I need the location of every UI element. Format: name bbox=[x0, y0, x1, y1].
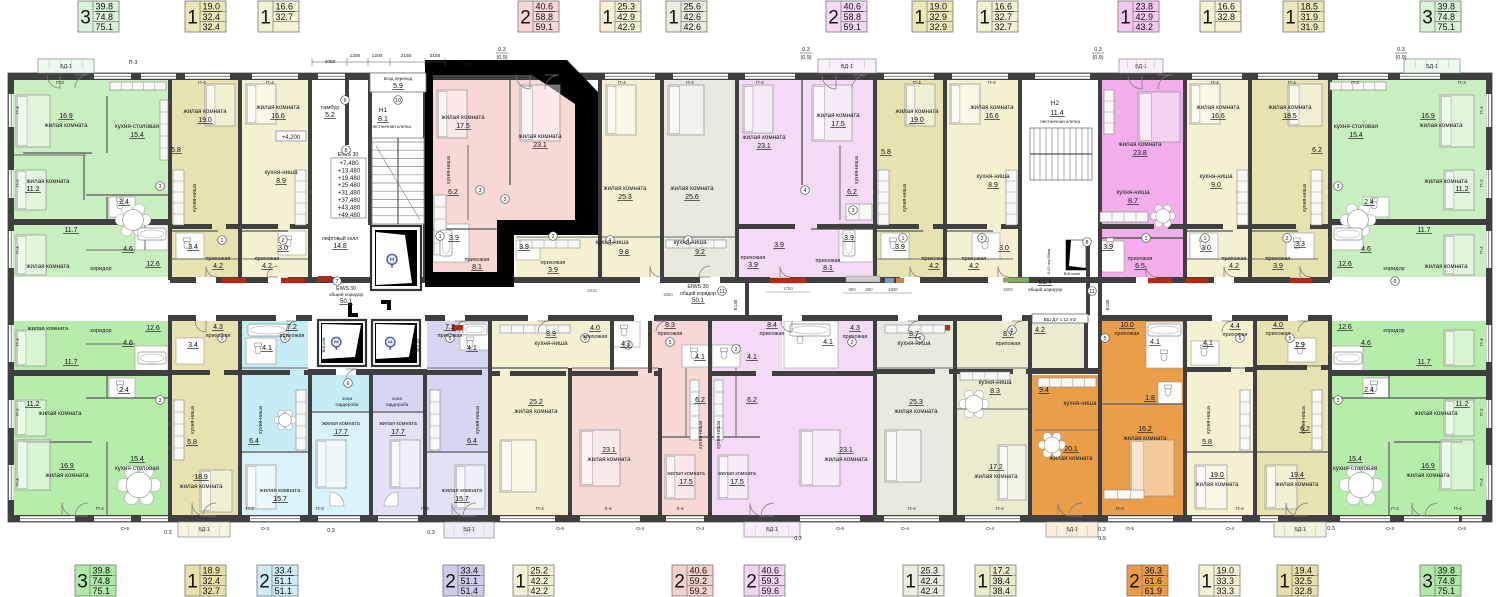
svg-text:гардероба: гардероба bbox=[386, 402, 409, 408]
svg-text:БД-1: БД-1 bbox=[1426, 64, 1438, 70]
svg-text:П-4: П-4 bbox=[1479, 106, 1484, 114]
svg-text:40.6: 40.6 bbox=[536, 2, 554, 12]
svg-text:16.6: 16.6 bbox=[276, 2, 294, 12]
svg-text:О-5: О-5 bbox=[836, 526, 844, 532]
svg-text:25.6: 25.6 bbox=[684, 2, 702, 12]
svg-text:прихожая: прихожая bbox=[206, 256, 231, 262]
svg-text:3.3: 3.3 bbox=[1295, 241, 1305, 248]
svg-text:1: 1 bbox=[668, 8, 679, 29]
svg-text:2: 2 bbox=[1129, 572, 1140, 593]
svg-text:жилая комната: жилая комната bbox=[718, 471, 756, 477]
svg-text:4.2: 4.2 bbox=[969, 263, 979, 270]
svg-text:жилая комната: жилая комната bbox=[894, 408, 938, 415]
svg-text:П-4: П-4 bbox=[1454, 506, 1462, 512]
svg-text:75.1: 75.1 bbox=[96, 22, 114, 32]
svg-text:1: 1 bbox=[187, 572, 198, 593]
svg-text:14.8: 14.8 bbox=[333, 243, 347, 250]
svg-text:59.3: 59.3 bbox=[762, 576, 780, 586]
svg-text:19.4: 19.4 bbox=[1295, 566, 1313, 576]
svg-text:жилая комната: жилая комната bbox=[1419, 122, 1463, 129]
svg-text:12.6: 12.6 bbox=[146, 325, 160, 332]
svg-text:4.1: 4.1 bbox=[1203, 340, 1213, 347]
svg-text:(0.9): (0.9) bbox=[496, 55, 507, 61]
svg-text:кухня-ниша: кухня-ниша bbox=[902, 184, 908, 212]
svg-text:П-3: П-3 bbox=[421, 506, 429, 512]
svg-text:кухня-ниша: кухня-ниша bbox=[1301, 406, 1307, 434]
svg-text:1: 1 bbox=[902, 236, 905, 242]
svg-text:18.9: 18.9 bbox=[194, 474, 208, 481]
svg-text:БД-1: БД-1 bbox=[463, 527, 475, 533]
svg-text:4.1: 4.1 bbox=[747, 354, 757, 361]
svg-text:кухня-ниша: кухня-ниша bbox=[264, 169, 298, 176]
svg-text:42.2: 42.2 bbox=[531, 586, 549, 596]
svg-text:(0.9): (0.9) bbox=[800, 55, 811, 61]
svg-text:6.2: 6.2 bbox=[695, 397, 705, 404]
svg-text:3: 3 bbox=[1337, 184, 1340, 190]
svg-text:11.7: 11.7 bbox=[1417, 227, 1430, 234]
svg-text:1800: 1800 bbox=[1003, 287, 1013, 292]
svg-text:16.9: 16.9 bbox=[1421, 113, 1435, 120]
svg-text:5.9: 5.9 bbox=[393, 83, 403, 90]
svg-text:1: 1 bbox=[1145, 236, 1148, 242]
svg-text:жилая комната: жилая комната bbox=[667, 471, 705, 477]
svg-text:42.9: 42.9 bbox=[618, 12, 636, 22]
svg-text:1: 1 bbox=[977, 572, 988, 593]
svg-text:32.9: 32.9 bbox=[930, 22, 948, 32]
svg-text:П-4: П-4 bbox=[913, 80, 921, 86]
svg-text:П-4: П-4 bbox=[1236, 506, 1244, 512]
svg-text:5: 5 bbox=[669, 340, 672, 346]
svg-text:8.3: 8.3 bbox=[665, 322, 675, 329]
svg-text:36.3: 36.3 bbox=[1145, 566, 1163, 576]
svg-text:жилая комната: жилая комната bbox=[518, 133, 562, 140]
svg-text:прихожая: прихожая bbox=[996, 341, 1021, 347]
svg-text:4.3: 4.3 bbox=[213, 324, 223, 331]
svg-text:жилая комната: жилая комната bbox=[26, 263, 70, 270]
svg-text:6.4: 6.4 bbox=[249, 438, 259, 445]
svg-text:прихожая: прихожая bbox=[1223, 332, 1248, 338]
svg-text:+25,480: +25,480 bbox=[338, 182, 361, 189]
svg-text:33.4: 33.4 bbox=[275, 566, 293, 576]
svg-text:кухня-ниша: кухня-ниша bbox=[673, 239, 707, 246]
svg-text:16.2: 16.2 bbox=[1138, 426, 1152, 433]
svg-text:75.1: 75.1 bbox=[1438, 586, 1456, 596]
svg-text:11: 11 bbox=[719, 289, 725, 295]
svg-text:жилая комната: жилая комната bbox=[183, 108, 227, 115]
svg-text:лифтовый холл: лифтовый холл bbox=[322, 235, 358, 242]
svg-text:32.7: 32.7 bbox=[995, 12, 1013, 22]
svg-text:12.6: 12.6 bbox=[146, 261, 160, 268]
svg-text:кухня-ниша: кухня-ниша bbox=[192, 184, 198, 212]
svg-text:коридор: коридор bbox=[90, 266, 111, 272]
svg-text:жилая комната: жилая комната bbox=[816, 112, 860, 119]
svg-text:10: 10 bbox=[395, 98, 401, 104]
svg-text:17.2: 17.2 bbox=[989, 464, 1003, 471]
svg-text:О-4: О-4 bbox=[1226, 526, 1234, 532]
svg-text:H2: H2 bbox=[1051, 100, 1060, 107]
svg-text:15.4: 15.4 bbox=[1349, 132, 1363, 139]
svg-text:жилая комната: жилая комната bbox=[974, 473, 1018, 480]
svg-text:4.4: 4.4 bbox=[1230, 323, 1240, 330]
svg-text:8.1: 8.1 bbox=[472, 264, 482, 271]
svg-text:990: 990 bbox=[848, 287, 856, 292]
svg-text:EIWS 30: EIWS 30 bbox=[336, 286, 356, 292]
svg-text:EIWS 30: EIWS 30 bbox=[687, 284, 708, 290]
svg-text:42.4: 42.4 bbox=[921, 586, 939, 596]
svg-text:19.0: 19.0 bbox=[930, 2, 948, 12]
svg-text:9.2: 9.2 bbox=[695, 249, 705, 256]
svg-text:тамбур: тамбур bbox=[321, 105, 340, 111]
svg-text:П-4: П-4 bbox=[536, 506, 544, 512]
svg-text:прихожая: прихожая bbox=[1128, 256, 1153, 262]
svg-text:25.3: 25.3 bbox=[618, 194, 632, 201]
svg-text:БД-1: БД-1 bbox=[841, 64, 853, 70]
svg-text:51.1: 51.1 bbox=[275, 576, 293, 586]
svg-text:+4,200: +4,200 bbox=[282, 135, 301, 141]
svg-text:жилая комната: жилая комната bbox=[260, 488, 301, 494]
svg-text:О-4: О-4 bbox=[636, 526, 644, 532]
svg-text:3.0: 3.0 bbox=[1201, 245, 1211, 252]
svg-text:П-4: П-4 bbox=[988, 80, 996, 86]
svg-text:32.4: 32.4 bbox=[203, 12, 221, 22]
svg-text:11.7: 11.7 bbox=[64, 227, 77, 234]
svg-text:4.6: 4.6 bbox=[1361, 340, 1371, 347]
svg-text:жилая комната: жилая комната bbox=[1195, 481, 1239, 488]
svg-text:кухня-ниша: кухня-ниша bbox=[1206, 406, 1212, 434]
svg-text:33.4: 33.4 bbox=[461, 566, 479, 576]
svg-text:4.1: 4.1 bbox=[695, 354, 705, 361]
svg-text:25.3: 25.3 bbox=[618, 2, 636, 12]
svg-text:П-3: П-3 bbox=[1391, 506, 1399, 512]
svg-text:кухня-столовая: кухня-столовая bbox=[115, 465, 159, 472]
svg-text:5.8: 5.8 bbox=[881, 149, 891, 156]
svg-text:прихожая: прихожая bbox=[1222, 256, 1247, 262]
svg-text:H1: H1 bbox=[379, 107, 388, 114]
svg-text:3: 3 bbox=[852, 208, 855, 214]
svg-text:П-3: П-3 bbox=[56, 80, 64, 86]
svg-text:коридор: коридор bbox=[90, 328, 111, 334]
svg-text:П-2: П-2 bbox=[1479, 408, 1484, 416]
svg-text:прихожая: прихожая bbox=[541, 260, 566, 266]
svg-text:8.7: 8.7 bbox=[1003, 331, 1013, 338]
svg-text:16.9: 16.9 bbox=[59, 113, 73, 120]
svg-text:3.9: 3.9 bbox=[1273, 263, 1283, 270]
svg-text:БД-1: БД-1 bbox=[60, 64, 72, 70]
svg-text:+49,480: +49,480 bbox=[338, 212, 361, 219]
svg-text:0.3: 0.3 bbox=[1098, 527, 1106, 533]
svg-text:61.6: 61.6 bbox=[1145, 576, 1163, 586]
svg-text:2: 2 bbox=[851, 340, 854, 346]
svg-text:23.1: 23.1 bbox=[533, 142, 547, 149]
svg-text:П-4: П-4 bbox=[686, 80, 694, 86]
svg-text:кухня-ниша: кухня-ниша bbox=[258, 406, 264, 434]
svg-text:6.5: 6.5 bbox=[1135, 263, 1145, 270]
svg-text:2.4: 2.4 bbox=[119, 199, 129, 206]
svg-text:О-4: О-4 bbox=[901, 526, 909, 532]
svg-text:кухня-ниша: кухня-ниша bbox=[595, 239, 629, 246]
svg-text:2: 2 bbox=[981, 236, 984, 242]
svg-text:74.8: 74.8 bbox=[93, 576, 111, 586]
svg-text:11.7: 11.7 bbox=[64, 359, 77, 366]
svg-text:15.4: 15.4 bbox=[130, 132, 144, 139]
svg-text:прихожая: прихожая bbox=[255, 256, 280, 262]
svg-text:38.4: 38.4 bbox=[993, 576, 1011, 586]
svg-text:прихожая: прихожая bbox=[465, 257, 490, 263]
svg-text:8.1: 8.1 bbox=[378, 116, 388, 123]
svg-text:74.8: 74.8 bbox=[1438, 12, 1456, 22]
svg-text:9: 9 bbox=[344, 98, 347, 104]
svg-text:П-4: П-4 bbox=[1211, 80, 1219, 86]
svg-text:39.8: 39.8 bbox=[1438, 566, 1456, 576]
svg-text:жилая комната: жилая комната bbox=[1196, 104, 1240, 111]
svg-text:общий коридор: общий коридор bbox=[329, 291, 364, 298]
svg-text:3.4: 3.4 bbox=[188, 342, 198, 349]
svg-text:11: 11 bbox=[1089, 289, 1095, 295]
svg-text:32.4: 32.4 bbox=[203, 22, 221, 32]
svg-text:кухня-ниша: кухня-ниша bbox=[1116, 189, 1150, 196]
svg-text:40.6: 40.6 bbox=[690, 566, 708, 576]
svg-text:3.9: 3.9 bbox=[844, 235, 854, 242]
svg-text:зона: зона bbox=[342, 397, 352, 402]
svg-text:16.9: 16.9 bbox=[1421, 463, 1435, 470]
svg-text:О-5: О-5 bbox=[556, 526, 564, 532]
svg-text:17.5: 17.5 bbox=[831, 121, 845, 128]
svg-text:10.0: 10.0 bbox=[1120, 322, 1134, 329]
svg-text:П-3: П-3 bbox=[1351, 80, 1359, 86]
svg-text:1: 1 bbox=[1201, 572, 1212, 593]
svg-text:3: 3 bbox=[1422, 572, 1433, 593]
svg-text:9.8: 9.8 bbox=[619, 249, 629, 256]
svg-text:кухня-ниша: кухня-ниша bbox=[446, 156, 452, 184]
svg-text:БД-1: БД-1 bbox=[1294, 527, 1306, 533]
svg-text:общий коридор: общий коридор bbox=[680, 290, 716, 297]
svg-text:16.6: 16.6 bbox=[1218, 2, 1236, 12]
svg-text:6.2: 6.2 bbox=[747, 397, 757, 404]
svg-text:3: 3 bbox=[1337, 398, 1340, 404]
svg-text:51.4: 51.4 bbox=[461, 586, 479, 596]
svg-text:жилая комната: жилая комната bbox=[322, 421, 360, 427]
svg-text:4.2: 4.2 bbox=[929, 263, 939, 270]
svg-text:6.2: 6.2 bbox=[448, 189, 458, 196]
svg-text:38.4: 38.4 bbox=[993, 586, 1011, 596]
svg-text:+13,480: +13,480 bbox=[338, 167, 361, 174]
svg-text:П-4: П-4 bbox=[15, 478, 20, 486]
svg-text:П-4: П-4 bbox=[756, 80, 764, 86]
svg-text:16.6: 16.6 bbox=[995, 2, 1013, 12]
svg-text:О-4: О-4 bbox=[696, 526, 704, 532]
svg-text:кухня-ниша: кухня-ниша bbox=[978, 379, 1012, 386]
svg-text:40.6: 40.6 bbox=[844, 2, 862, 12]
svg-text:2: 2 bbox=[445, 572, 456, 593]
svg-text:3.9: 3.9 bbox=[1103, 244, 1113, 251]
svg-text:12.6: 12.6 bbox=[1338, 261, 1352, 268]
svg-text:0.3: 0.3 bbox=[1397, 47, 1405, 53]
svg-text:0.3: 0.3 bbox=[498, 47, 506, 53]
svg-text:П-4: П-4 bbox=[96, 506, 104, 512]
svg-text:кухня-ниша: кухня-ниша bbox=[716, 421, 722, 449]
svg-text:59.2: 59.2 bbox=[690, 576, 708, 586]
svg-text:0.9: 0.9 bbox=[1098, 536, 1106, 542]
svg-text:П-4: П-4 bbox=[15, 106, 20, 114]
svg-text:коридор: коридор bbox=[1383, 328, 1404, 334]
svg-text:кухня-ниша: кухня-ниша bbox=[1199, 173, 1233, 180]
svg-text:лестничная клетка: лестничная клетка bbox=[371, 124, 411, 129]
svg-text:11.2: 11.2 bbox=[1455, 186, 1468, 193]
svg-text:жилая комната: жилая комната bbox=[1118, 141, 1162, 148]
svg-text:П-4: П-4 bbox=[1479, 478, 1484, 486]
svg-text:1750: 1750 bbox=[783, 286, 793, 291]
svg-text:42.4: 42.4 bbox=[921, 576, 939, 586]
svg-text:17.5: 17.5 bbox=[456, 123, 470, 130]
svg-text:кухня-столовая: кухня-столовая bbox=[1334, 123, 1378, 130]
svg-text:2.4: 2.4 bbox=[1364, 199, 1374, 206]
svg-text:3: 3 bbox=[504, 197, 507, 203]
svg-text:кухня-ниша: кухня-ниша bbox=[897, 340, 931, 347]
svg-text:(0.9): (0.9) bbox=[1092, 55, 1103, 61]
svg-text:2.9: 2.9 bbox=[1295, 342, 1305, 349]
svg-text:4.1: 4.1 bbox=[1150, 339, 1160, 346]
svg-text:БД-1: БД-1 bbox=[1135, 64, 1147, 70]
svg-text:зона: зона bbox=[392, 397, 402, 402]
svg-text:4.6: 4.6 bbox=[1361, 246, 1371, 253]
svg-text:прихожая: прихожая bbox=[816, 258, 841, 264]
svg-text:17.5: 17.5 bbox=[679, 479, 693, 486]
svg-text:9.0: 9.0 bbox=[1211, 182, 1221, 189]
svg-text:25.2: 25.2 bbox=[529, 399, 543, 406]
svg-text:6.2: 6.2 bbox=[847, 189, 857, 196]
svg-text:5.8: 5.8 bbox=[1202, 439, 1212, 446]
svg-text:1200: 1200 bbox=[372, 53, 383, 59]
svg-text:жилая комната: жилая комната bbox=[1414, 410, 1458, 417]
svg-text:32.8: 32.8 bbox=[1295, 586, 1313, 596]
svg-text:17.5: 17.5 bbox=[730, 479, 744, 486]
svg-text:жилая комната: жилая комната bbox=[742, 134, 786, 141]
svg-text:П-4: П-4 bbox=[1479, 246, 1484, 254]
svg-text:жилая комната: жилая комната bbox=[1424, 178, 1468, 185]
svg-text:1: 1 bbox=[515, 572, 526, 593]
svg-text:кухня-ниша: кухня-ниша bbox=[1302, 184, 1308, 212]
svg-text:4.1: 4.1 bbox=[262, 345, 272, 352]
svg-text:кухня-ниша: кухня-ниша bbox=[475, 406, 481, 434]
svg-text:1: 1 bbox=[221, 238, 224, 244]
svg-text:31.9: 31.9 bbox=[1301, 22, 1319, 32]
svg-text:2150: 2150 bbox=[430, 53, 441, 59]
svg-text:1: 1 bbox=[914, 8, 925, 29]
svg-text:6: 6 bbox=[347, 381, 350, 387]
svg-text:О-5: О-5 bbox=[1458, 526, 1466, 532]
svg-text:39.8: 39.8 bbox=[93, 566, 111, 576]
svg-text:11.2: 11.2 bbox=[26, 401, 39, 408]
svg-text:3.9: 3.9 bbox=[519, 244, 529, 251]
svg-text:2: 2 bbox=[735, 347, 738, 353]
svg-text:15.4: 15.4 bbox=[130, 456, 144, 463]
svg-text:+31,480: +31,480 bbox=[338, 190, 361, 197]
svg-text:25.3: 25.3 bbox=[921, 566, 939, 576]
svg-text:4.1: 4.1 bbox=[823, 339, 833, 346]
svg-text:О-3: О-3 bbox=[463, 62, 472, 68]
svg-text:58.8: 58.8 bbox=[536, 12, 554, 22]
svg-text:16.9: 16.9 bbox=[60, 463, 74, 470]
svg-text:33.3: 33.3 bbox=[1217, 576, 1235, 586]
svg-text:4.6: 4.6 bbox=[123, 246, 133, 253]
svg-text:3: 3 bbox=[1422, 8, 1433, 29]
svg-text:кухня-столовая: кухня-столовая bbox=[115, 123, 159, 130]
svg-text:ВШ ДУ: ВШ ДУ bbox=[416, 338, 421, 352]
svg-text:11.7: 11.7 bbox=[1417, 359, 1430, 366]
svg-text:П-4: П-4 bbox=[266, 80, 274, 86]
svg-text:П-3: П-3 bbox=[129, 60, 138, 66]
svg-text:20.1: 20.1 bbox=[1064, 446, 1078, 453]
svg-text:43.2: 43.2 bbox=[1136, 22, 1154, 32]
svg-text:59.2: 59.2 bbox=[690, 586, 708, 596]
svg-text:2150: 2150 bbox=[401, 53, 412, 59]
svg-text:Е130: Е130 bbox=[1105, 299, 1110, 310]
svg-text:жилая комната: жилая комната bbox=[1424, 263, 1468, 270]
svg-text:11.4: 11.4 bbox=[1050, 110, 1063, 117]
svg-text:+19,480: +19,480 bbox=[338, 175, 361, 182]
svg-text:4.0: 4.0 bbox=[1273, 322, 1283, 329]
svg-text:59.1: 59.1 bbox=[844, 22, 862, 32]
svg-text:прихожая: прихожая bbox=[1266, 256, 1291, 262]
svg-text:1.8: 1.8 bbox=[1145, 395, 1155, 402]
svg-text:11.2: 11.2 bbox=[1455, 401, 1468, 408]
svg-text:11.2: 11.2 bbox=[26, 186, 39, 193]
svg-text:61.4: 61.4 bbox=[1039, 279, 1052, 286]
svg-text:50.1: 50.1 bbox=[692, 298, 704, 304]
svg-text:1: 1 bbox=[260, 8, 271, 29]
svg-text:4.0: 4.0 bbox=[590, 325, 600, 332]
svg-text:П-3: П-3 bbox=[1458, 80, 1466, 86]
svg-text:23.1: 23.1 bbox=[757, 143, 771, 150]
svg-text:4.2: 4.2 bbox=[213, 263, 223, 270]
svg-text:жилая комната: жилая комната bbox=[1406, 472, 1450, 479]
svg-text:П-4: П-4 bbox=[1116, 506, 1124, 512]
svg-text:О-5: О-5 bbox=[121, 526, 129, 532]
svg-text:4.1: 4.1 bbox=[621, 341, 631, 348]
svg-text:гардероба: гардероба bbox=[336, 402, 359, 408]
svg-text:прихожая: прихожая bbox=[962, 256, 987, 262]
svg-text:61.9: 61.9 bbox=[1145, 586, 1163, 596]
svg-text:П-3: П-3 bbox=[316, 506, 324, 512]
svg-text:6.2: 6.2 bbox=[1312, 147, 1322, 154]
svg-text:32.7: 32.7 bbox=[203, 586, 221, 596]
svg-text:2: 2 bbox=[552, 234, 555, 240]
svg-text:П-4: П-4 bbox=[1288, 80, 1296, 86]
svg-text:1810: 1810 bbox=[587, 288, 597, 293]
svg-text:2: 2 bbox=[282, 238, 285, 244]
svg-text:8: 8 bbox=[345, 148, 348, 154]
svg-text:7.2: 7.2 bbox=[287, 324, 297, 331]
svg-text:19.0: 19.0 bbox=[910, 117, 924, 124]
svg-text:1: 1 bbox=[979, 8, 990, 29]
svg-text:жилая комната: жилая комната bbox=[514, 408, 558, 415]
svg-text:БД-1: БД-1 bbox=[1066, 527, 1078, 533]
svg-text:8: 8 bbox=[1086, 240, 1089, 246]
svg-text:6: 6 bbox=[1394, 279, 1397, 285]
svg-text:25.6: 25.6 bbox=[685, 194, 699, 201]
svg-text:О-3: О-3 bbox=[1386, 526, 1394, 532]
svg-text:2: 2 bbox=[674, 572, 685, 593]
svg-text:2: 2 bbox=[828, 8, 839, 29]
svg-text:15.7: 15.7 bbox=[273, 496, 287, 503]
svg-text:42.6: 42.6 bbox=[684, 12, 702, 22]
svg-text:Е130: Е130 bbox=[733, 299, 738, 310]
svg-text:0.3: 0.3 bbox=[802, 47, 810, 53]
svg-text:ВШ ДУ 1.12 m2: ВШ ДУ 1.12 m2 bbox=[1044, 317, 1077, 322]
svg-text:жилая комната: жилая комната bbox=[1123, 435, 1167, 442]
svg-text:жилая комната: жилая комната bbox=[587, 456, 631, 463]
svg-text:прихожая: прихожая bbox=[843, 334, 868, 340]
